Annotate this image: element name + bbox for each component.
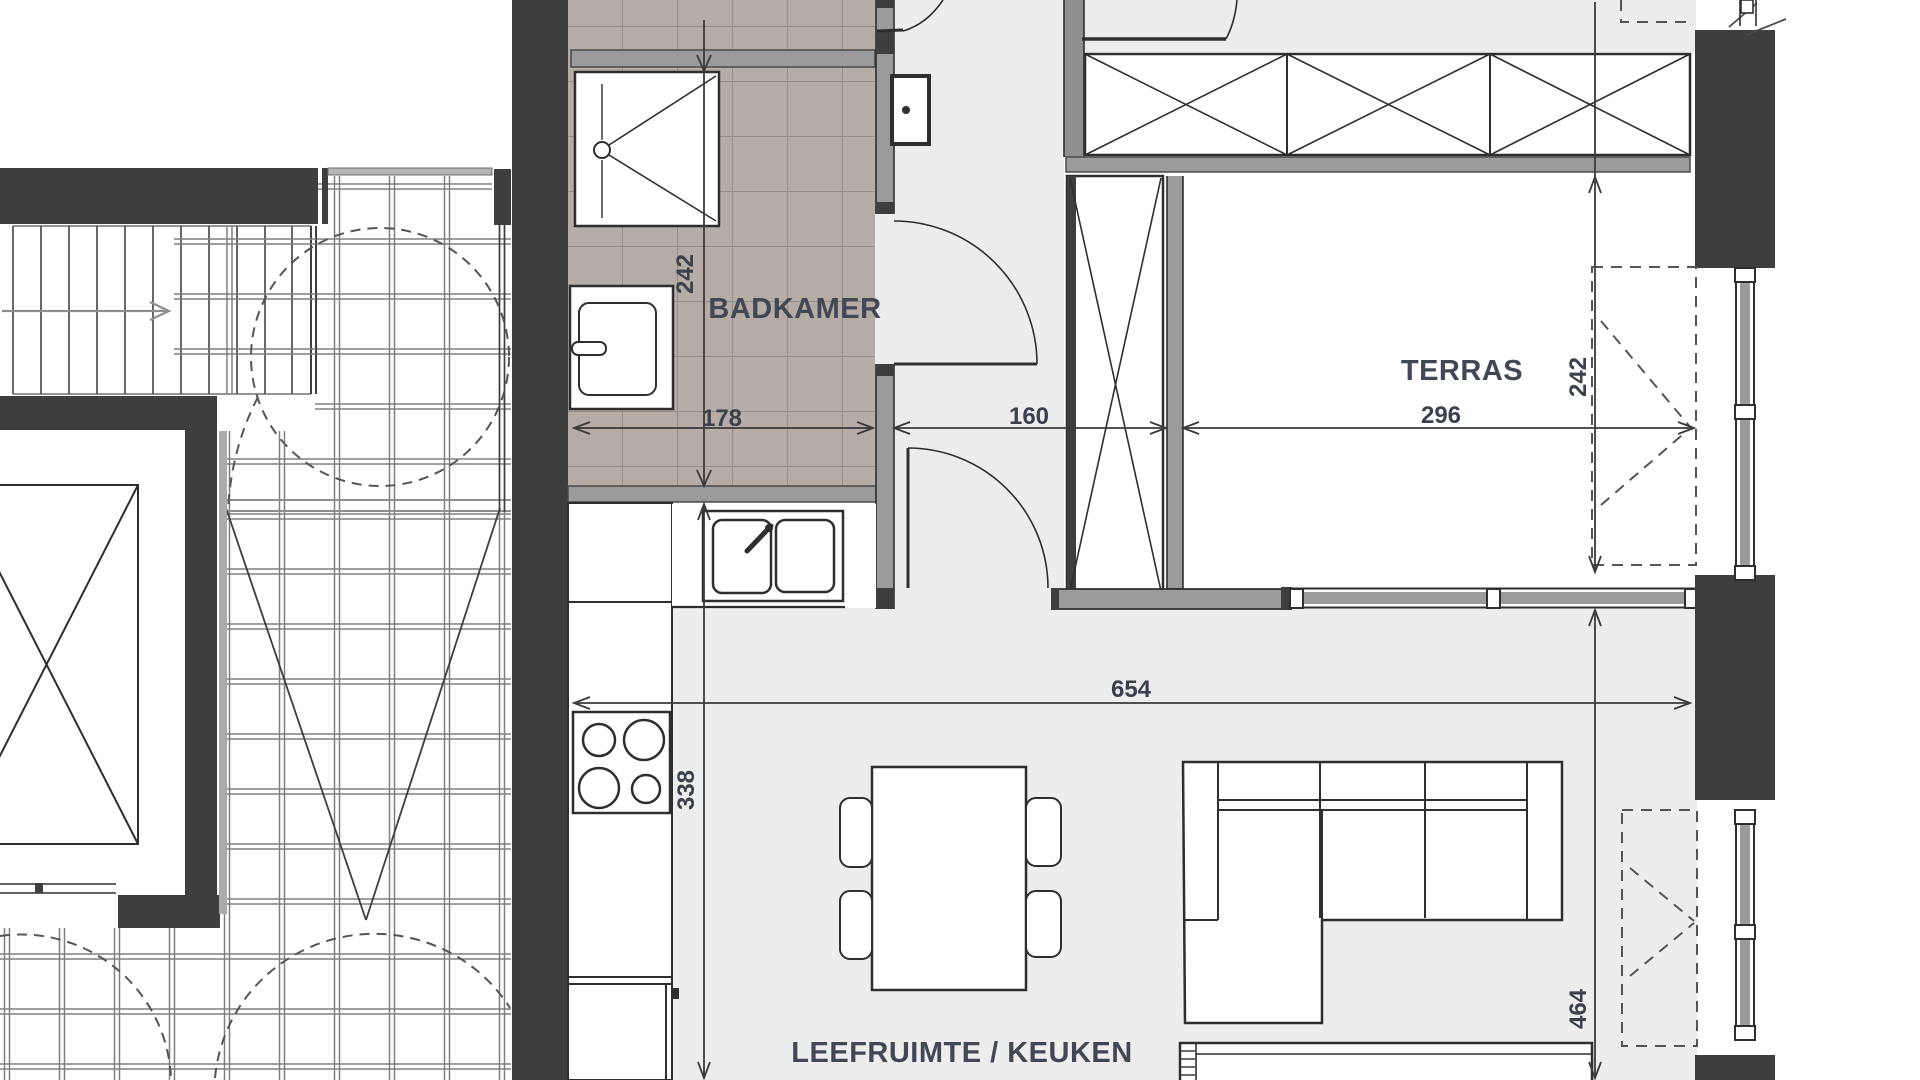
svg-text:160: 160 — [1009, 403, 1049, 430]
svg-text:242: 242 — [672, 254, 699, 294]
svg-text:464: 464 — [1565, 988, 1592, 1029]
svg-text:338: 338 — [673, 770, 700, 810]
svg-text:TERRAS: TERRAS — [1401, 355, 1523, 387]
svg-text:654: 654 — [1111, 676, 1152, 703]
svg-text:242: 242 — [1565, 357, 1592, 397]
svg-text:BADKAMER: BADKAMER — [708, 293, 881, 325]
svg-text:178: 178 — [702, 405, 742, 432]
svg-text:LEEFRUIMTE / KEUKEN: LEEFRUIMTE / KEUKEN — [791, 1037, 1132, 1069]
svg-text:296: 296 — [1421, 402, 1461, 429]
